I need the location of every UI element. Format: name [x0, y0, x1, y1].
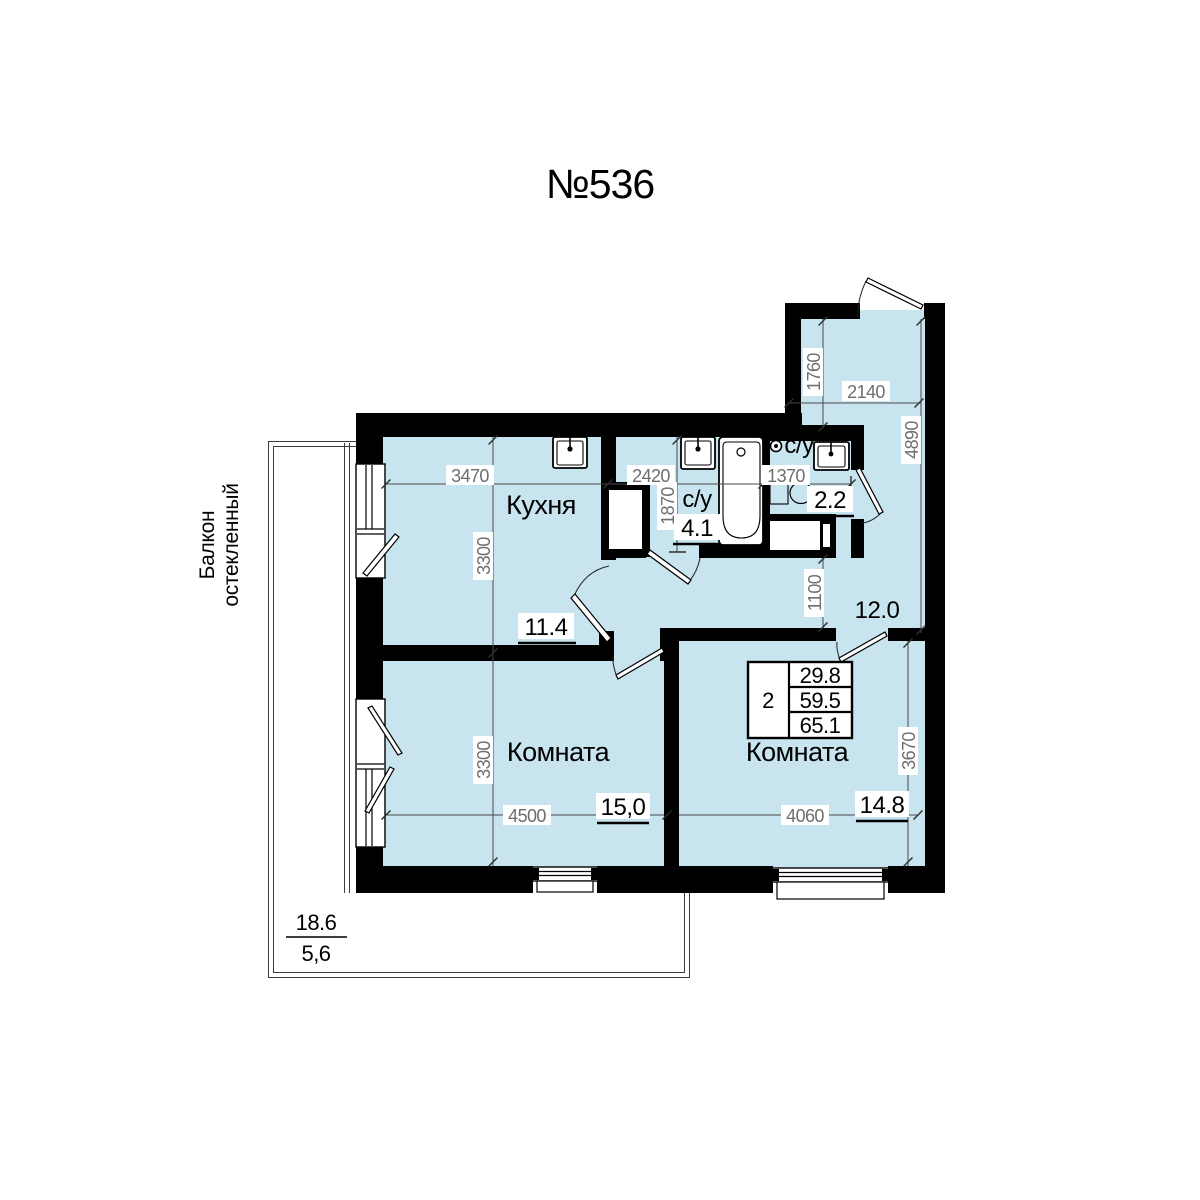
svg-text:2140: 2140: [847, 382, 885, 402]
svg-text:14.8: 14.8: [860, 792, 905, 819]
svg-text:4060: 4060: [786, 806, 824, 826]
dim-kitchen-height: 3300: [473, 532, 494, 580]
svg-text:4.1: 4.1: [681, 515, 713, 542]
room2-area: 14.8: [855, 791, 909, 821]
svg-text:3670: 3670: [899, 732, 919, 770]
svg-text:1760: 1760: [804, 353, 824, 391]
svg-text:остекленный: остекленный: [220, 483, 243, 606]
kitchen-area: 11.4: [518, 613, 576, 643]
wall-kitchen-bottom: [356, 645, 610, 661]
room2-label: Комната: [746, 737, 850, 767]
svg-text:3470: 3470: [451, 466, 489, 486]
dim-entry-height: 1760: [803, 348, 824, 396]
bath2-area: 2.2: [806, 486, 854, 516]
wall-bottom-b: [597, 866, 773, 893]
washing-machine-icon: [770, 521, 820, 550]
svg-text:11.4: 11.4: [525, 614, 568, 641]
wall-top-main: [356, 413, 802, 437]
wall-between-rooms: [664, 641, 679, 866]
floorplan-drawing: 3470 2420 1370 2140 4500 4060 3300 3300: [0, 0, 1200, 1200]
svg-text:15,0: 15,0: [601, 794, 646, 821]
balcony-area-fraction: 18.6 5,6: [286, 910, 347, 966]
wall-left-bottom: [356, 846, 383, 893]
dim-entry-width: 2140: [842, 381, 890, 402]
svg-text:1100: 1100: [805, 574, 825, 611]
bath1-label: с/у: [682, 486, 712, 513]
room1-area: 15,0: [596, 793, 650, 823]
dim-room2-height: 3670: [898, 727, 919, 775]
bath1-area: 4.1: [673, 514, 721, 544]
dim-room1-height: 3300: [473, 736, 494, 784]
dim-bath2-width: 1370: [762, 465, 810, 486]
wall-bath2-right-bottom: [851, 519, 864, 558]
svg-text:4500: 4500: [508, 806, 546, 826]
svg-text:3300: 3300: [474, 741, 494, 779]
bathtub-icon: [719, 437, 763, 545]
dim-hall-right-height: 4890: [901, 416, 922, 464]
window-room2-bottom: [772, 868, 889, 899]
wall-entry-top-left: [785, 303, 860, 319]
vent-shaft-inner: [609, 490, 642, 549]
svg-text:1370: 1370: [767, 466, 805, 486]
wall-left-mid: [356, 577, 383, 701]
wall-bottom-c: [888, 866, 945, 893]
dim-room2-width: 4060: [781, 805, 829, 826]
svg-text:Балкон: Балкон: [196, 511, 219, 580]
wall-right: [925, 303, 945, 893]
room1-label: Комната: [507, 737, 611, 767]
hall-area: 12.0: [855, 597, 900, 624]
balcony-area-reduced: 5,6: [301, 941, 330, 966]
bath2-sink-icon: [814, 437, 849, 470]
washing-machine-panel: [823, 524, 830, 547]
info-total-area: 65.1: [800, 713, 841, 738]
svg-text:2.2: 2.2: [814, 487, 846, 514]
wall-hall-room2-right: [888, 628, 925, 641]
floorplan-page: 3470 2420 1370 2140 4500 4060 3300 3300: [0, 0, 1200, 1200]
apartment-info-box: 2 29.8 59.5 65.1: [748, 662, 852, 738]
info-rooms-count: 2: [762, 688, 774, 713]
window-room1-bottom: [532, 867, 598, 892]
balcony-label: Балкон остекленный: [196, 483, 243, 606]
dim-kitchen-width: 3470: [446, 465, 494, 486]
kitchen-label: Кухня: [506, 490, 576, 520]
wall-bath1-bottom-right: [699, 545, 765, 558]
wall-hall-room2-left: [677, 628, 836, 641]
towel-dryer-icon: [771, 441, 782, 452]
wall-bath2-right-top: [851, 428, 864, 470]
wall-entry-left: [785, 303, 801, 437]
bath1-sink-icon: [681, 431, 715, 469]
page-title: №536: [546, 161, 654, 207]
info-area-no-balcony: 59.5: [800, 688, 841, 713]
svg-text:3300: 3300: [474, 537, 494, 575]
kitchen-sink-icon: [553, 431, 587, 468]
info-living-area: 29.8: [800, 663, 841, 688]
wall-left-top: [356, 413, 383, 466]
dim-hall-gap-height: 1100: [804, 569, 825, 617]
dim-room1-width: 4500: [503, 805, 551, 826]
balcony-area-full: 18.6: [296, 910, 337, 935]
svg-text:4890: 4890: [902, 421, 922, 459]
bath2-label: с/у: [784, 432, 814, 459]
